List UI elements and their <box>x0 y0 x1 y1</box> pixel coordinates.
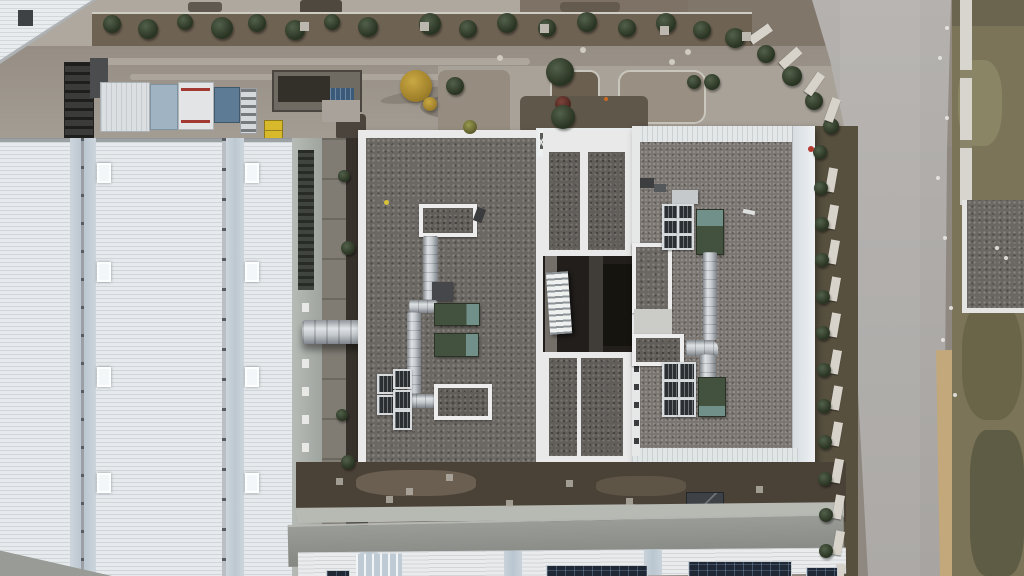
main-roof-mid-top <box>543 130 635 256</box>
rooftop-equipment <box>640 178 654 188</box>
mid-panel-1 <box>549 152 580 250</box>
roof-seam <box>81 138 84 576</box>
trailer-white-2 <box>178 82 214 130</box>
wall-gap <box>960 140 972 148</box>
rooftop-equipment <box>654 184 666 192</box>
concrete-pad-yard <box>322 100 360 122</box>
red-stripe <box>181 88 210 91</box>
roof-valley <box>644 549 662 575</box>
roof-curb-opening <box>419 204 477 237</box>
parapet-top-band <box>632 126 814 142</box>
main-roof-left-section <box>358 130 544 470</box>
grass-patch <box>970 430 1024 576</box>
green-hvac-unit-4 <box>699 378 725 416</box>
trailer-white <box>100 82 150 132</box>
trailer-blue <box>150 84 178 130</box>
rooftop-box <box>18 10 33 26</box>
green-hvac-unit-1 <box>435 304 479 325</box>
dirt-light-patch <box>596 476 686 496</box>
rubble-patch <box>188 2 222 12</box>
courtyard-lightwell <box>543 256 635 352</box>
louver-panel <box>546 271 572 334</box>
main-roof-mid-bottom <box>543 352 635 470</box>
wall-gap <box>960 70 972 78</box>
white-dash <box>743 209 756 215</box>
sub-roof <box>632 243 672 313</box>
yellow-marker <box>384 200 389 205</box>
wall-vent-grille <box>298 150 314 290</box>
courtyard-shadow <box>603 264 633 346</box>
truck-striped <box>240 88 257 134</box>
rubble-patch <box>560 2 620 12</box>
red-stripe <box>181 120 210 123</box>
gravel-pad-right <box>962 200 1024 313</box>
tire-track <box>100 58 530 65</box>
green-hvac-unit-2 <box>435 334 478 356</box>
roof-valley <box>226 138 244 576</box>
hvac-duct-drop <box>700 354 716 380</box>
hvac-duct-vertical-3 <box>703 252 717 340</box>
pit-interior <box>278 76 330 102</box>
container-blue <box>214 87 240 123</box>
main-roof-right-section <box>632 126 814 472</box>
glass-canopy <box>356 553 402 576</box>
warehouse-roof <box>0 138 298 576</box>
warehouse-eave-top <box>0 138 298 142</box>
roof-curb-opening-3 <box>632 334 684 366</box>
hvac-duct-vertical-2 <box>407 312 421 396</box>
duct-junction-box <box>432 282 453 301</box>
aerial-photo-industrial-site <box>0 0 1024 576</box>
roof-curb-opening-2 <box>434 384 492 420</box>
mid-panel-2 <box>588 152 625 250</box>
roof-valley <box>504 550 522 576</box>
courtyard-column <box>589 256 603 352</box>
mid-panel-4 <box>581 358 623 456</box>
planting-bed <box>92 12 752 50</box>
green-hvac-unit-3 <box>697 210 723 254</box>
lower-white-roof <box>298 548 846 576</box>
parapet-right-band <box>792 126 815 472</box>
mid-panel-3 <box>549 358 577 456</box>
dark-equipment-box <box>670 376 688 394</box>
roof-hatch-panel <box>672 190 698 204</box>
grass-patch <box>962 300 1022 420</box>
retaining-wall <box>960 0 972 205</box>
parapet-vents <box>634 366 639 452</box>
dirt-light-patch <box>356 470 476 496</box>
